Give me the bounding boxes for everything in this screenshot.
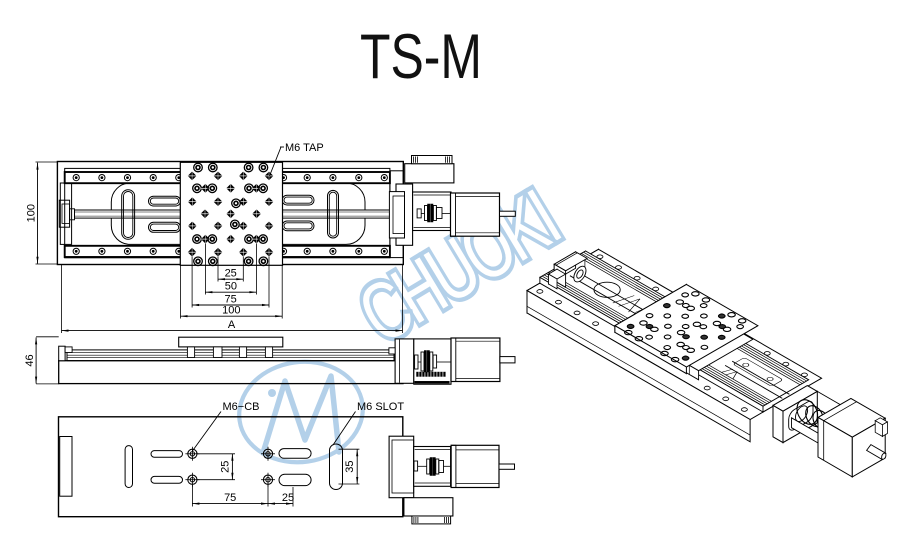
svg-text:35: 35 bbox=[344, 460, 356, 472]
svg-text:M6 SLOT: M6 SLOT bbox=[357, 401, 404, 413]
svg-text:75: 75 bbox=[224, 492, 236, 504]
svg-text:M6 TAP: M6 TAP bbox=[285, 142, 324, 154]
svg-text:25: 25 bbox=[282, 492, 294, 504]
svg-text:100: 100 bbox=[222, 305, 240, 317]
svg-text:25: 25 bbox=[220, 461, 232, 473]
svg-text:100: 100 bbox=[26, 204, 38, 222]
svg-text:25: 25 bbox=[225, 268, 237, 280]
svg-text:50: 50 bbox=[225, 281, 237, 293]
svg-text:A: A bbox=[228, 319, 236, 331]
svg-text:46: 46 bbox=[24, 354, 36, 366]
svg-text:TS-M: TS-M bbox=[360, 22, 482, 92]
svg-text:M6−CB: M6−CB bbox=[223, 401, 260, 413]
svg-text:75: 75 bbox=[224, 294, 236, 306]
